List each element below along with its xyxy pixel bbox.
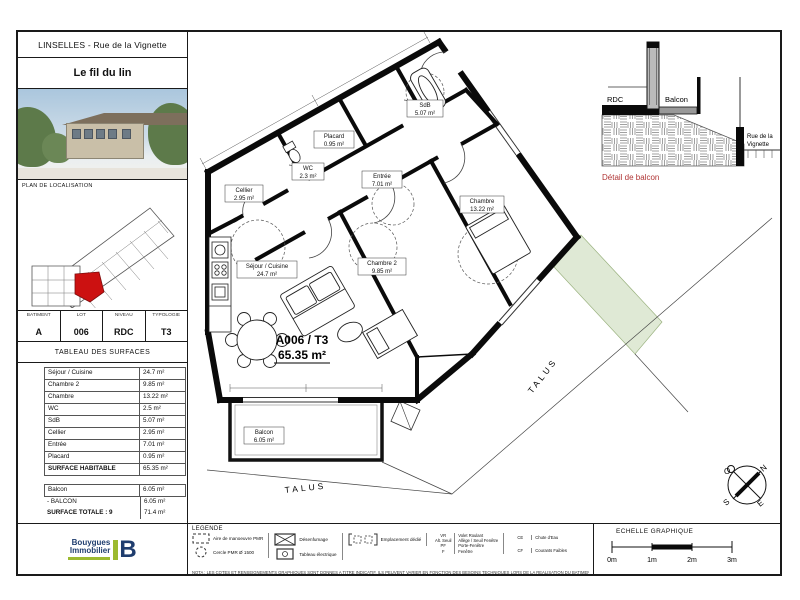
room-label-chambre: Chambre13.22 m² bbox=[460, 196, 504, 213]
scale-tick: 0m bbox=[607, 557, 617, 564]
legend-item: Tableau électrique bbox=[274, 548, 336, 560]
compass-s: S bbox=[722, 497, 732, 507]
legend-column: Désenfumage Tableau électrique bbox=[274, 533, 342, 560]
unit-info-cell: TYPOLOGIE T3 bbox=[146, 311, 188, 341]
pmr-area-icon bbox=[192, 533, 210, 544]
scale-tick: 3m bbox=[727, 557, 737, 564]
program-name: Le fil du lin bbox=[18, 58, 187, 89]
legend-item-label: Aire de manoeuvre PMR bbox=[213, 536, 263, 541]
legend-item: Cercle PMR Ø 1500 bbox=[192, 546, 263, 558]
room-label: Cellier bbox=[45, 428, 140, 439]
svg-text:2.3 m²: 2.3 m² bbox=[299, 174, 316, 180]
table-row: SdB5.07 m² bbox=[44, 416, 186, 428]
room-area: 9.85 m² bbox=[140, 380, 185, 391]
table-row: Séjour / Cuisine24.7 m² bbox=[44, 367, 186, 380]
table-row: Entrée7.01 m² bbox=[44, 440, 186, 452]
balcony-rail bbox=[697, 77, 701, 114]
logo-tagline-mark bbox=[68, 557, 110, 560]
room-label-balcon: Balcon6.05 m² bbox=[244, 427, 284, 444]
appliance-slot-icon bbox=[348, 533, 378, 546]
svg-text:5.07 m²: 5.07 m² bbox=[415, 111, 435, 117]
room-label: SURFACE HABITABLE bbox=[45, 464, 140, 475]
svg-text:7.01 m²: 7.01 m² bbox=[372, 182, 392, 188]
room-label: SURFACE TOTALE : 9 bbox=[44, 508, 141, 519]
room-label: Séjour / Cuisine bbox=[45, 368, 140, 379]
compass-e: E bbox=[756, 498, 766, 508]
balcony-sub-row: - BALCON6.05 m² bbox=[44, 497, 186, 508]
plan-sheet-page: LINSELLES - Rue de la Vignette Le fil du… bbox=[0, 0, 800, 600]
room-area: 6.05 m² bbox=[141, 497, 186, 508]
room-area: 5.07 m² bbox=[140, 416, 185, 427]
room-label-cellier: Cellier2.95 m² bbox=[225, 185, 263, 202]
street-wall bbox=[736, 127, 744, 166]
building-photo bbox=[18, 89, 187, 180]
table-row: Cellier2.95 m² bbox=[44, 428, 186, 440]
rdc-label: RDC bbox=[607, 95, 624, 104]
logo-box: Bouygues Immobilier B bbox=[18, 523, 188, 576]
balcony-slab bbox=[659, 107, 697, 114]
room-label-wc: WC2.3 m² bbox=[292, 163, 324, 180]
street-label: Rue de la bbox=[747, 134, 773, 140]
nota-text: NOTA : LES COTES ET RENSEIGNEMENTS GRAPH… bbox=[192, 570, 589, 575]
room-labels: Cellier2.95 m² WC2.3 m² Placard0.95 m² S… bbox=[225, 100, 504, 444]
scale-title: ECHELLE GRAPHIQUE bbox=[616, 528, 772, 535]
svg-text:Chambre 2: Chambre 2 bbox=[367, 261, 397, 267]
drawing-sheet: LINSELLES - Rue de la Vignette Le fil du… bbox=[16, 30, 782, 576]
svg-text:Placard: Placard bbox=[324, 134, 344, 140]
room-area: 24.7 m² bbox=[140, 368, 185, 379]
unit-info-table: BATIMENT A LOT 006 NIVEAU RDC TYPOLOGIE … bbox=[18, 311, 187, 342]
room-area: 7.01 m² bbox=[140, 440, 185, 451]
room-label: Balcon bbox=[45, 485, 140, 496]
balcon-label: Balcon bbox=[665, 95, 688, 104]
balcony-detail-drawing: RDC Balcon Rue de la Vignette Détail de … bbox=[602, 42, 780, 182]
balcony-row: Balcon6.05 m² bbox=[44, 484, 186, 497]
legend-title: LEGENDE bbox=[192, 526, 589, 532]
svg-text:9.85 m²: 9.85 m² bbox=[372, 269, 392, 275]
svg-text:13.22 m²: 13.22 m² bbox=[470, 207, 494, 213]
abbr-key: F bbox=[432, 549, 455, 554]
building-window bbox=[108, 129, 117, 139]
building-window bbox=[84, 129, 93, 139]
abbr-value: Fenêtre bbox=[458, 549, 472, 554]
legend-item-label: Emplacement dédié bbox=[381, 537, 422, 542]
compass-rose: N S E O bbox=[722, 463, 769, 509]
svg-text:A006 / T3: A006 / T3 bbox=[276, 333, 329, 347]
svg-text:Vignette: Vignette bbox=[747, 142, 770, 148]
table-row: WC2.5 m² bbox=[44, 404, 186, 416]
svg-text:Cellier: Cellier bbox=[235, 188, 252, 194]
legend-item-label: Cercle PMR Ø 1500 bbox=[213, 550, 254, 555]
toilet bbox=[283, 141, 303, 165]
svg-text:0.95 m²: 0.95 m² bbox=[324, 142, 344, 148]
pmr-circle-icon bbox=[192, 546, 210, 558]
abbr-key: CF bbox=[509, 548, 532, 553]
abbr-key: CE bbox=[509, 535, 532, 540]
svg-text:Entrée: Entrée bbox=[373, 174, 391, 180]
talus-label: TALUS bbox=[284, 481, 327, 495]
building-window bbox=[96, 129, 105, 139]
kitchen-counter bbox=[209, 237, 231, 332]
floor-plan-svg: TALUS TALUS bbox=[188, 32, 780, 523]
svg-text:Séjour / Cuisine: Séjour / Cuisine bbox=[246, 264, 289, 270]
detail-caption: Détail de balcon bbox=[602, 173, 659, 182]
compass-o: O bbox=[724, 467, 730, 476]
svg-text:2.95 m²: 2.95 m² bbox=[234, 196, 254, 202]
room-label: SdB bbox=[45, 416, 140, 427]
room-label: Entrée bbox=[45, 440, 140, 451]
green-area bbox=[554, 235, 662, 354]
legend-abbreviations: VRVolet Roulant Alt. SeuilAllège / Seuil… bbox=[432, 533, 504, 554]
table-row: Chambre 29.85 m² bbox=[44, 380, 186, 392]
room-label-chambre2: Chambre 29.85 m² bbox=[358, 258, 406, 275]
unit-info-header: LOT bbox=[61, 311, 103, 322]
room-label: Chambre 2 bbox=[45, 380, 140, 391]
room-area: 13.22 m² bbox=[140, 392, 185, 403]
abbr-value: Chute d'Eau bbox=[535, 535, 558, 540]
legend-box: LEGENDE Aire de manoeuvre PMR Cercle PMR… bbox=[188, 524, 594, 576]
table-row: Placard0.95 m² bbox=[44, 452, 186, 464]
svg-text:Chambre: Chambre bbox=[470, 199, 495, 205]
bouygues-immobilier-logo: Bouygues Immobilier B bbox=[68, 539, 136, 560]
floor-plan-area: TALUS TALUS bbox=[188, 32, 780, 523]
logo-b-glyph: B bbox=[119, 540, 136, 560]
room-area: 6.05 m² bbox=[140, 485, 185, 496]
room-label-entree: Entrée7.01 m² bbox=[362, 171, 402, 188]
room-label: - BALCON bbox=[44, 497, 141, 508]
svg-text:WC: WC bbox=[303, 166, 314, 172]
room-area: 65.35 m² bbox=[140, 464, 185, 475]
building-window bbox=[72, 129, 81, 139]
unit-code-label: A006 / T3 65.35 m² bbox=[274, 333, 330, 363]
legend-abbreviations: CEChute d'Eau CFCourants Faibles bbox=[509, 533, 572, 553]
svg-text:SdB: SdB bbox=[419, 103, 430, 109]
wall-section bbox=[647, 42, 659, 109]
surfaces-table-title: TABLEAU DES SURFACES bbox=[18, 342, 187, 363]
legend-item: Emplacement dédié bbox=[348, 533, 422, 546]
bed bbox=[465, 205, 531, 275]
bed bbox=[363, 310, 418, 359]
location-plan: PLAN DE LOCALISATION bbox=[18, 180, 187, 311]
scale-bar: 0m 1m 2m 3m bbox=[602, 535, 752, 565]
title-block-column: LINSELLES - Rue de la Vignette Le fil du… bbox=[18, 32, 188, 523]
building-window bbox=[122, 129, 131, 139]
room-area: 0.95 m² bbox=[140, 452, 185, 463]
habitable-surface-row: SURFACE HABITABLE65.35 m² bbox=[44, 464, 186, 476]
legend-item-label: Tableau électrique bbox=[299, 552, 336, 557]
scale-tick: 1m bbox=[647, 557, 657, 564]
talus-label: TALUS bbox=[526, 356, 560, 395]
legend-item-label: Désenfumage bbox=[299, 537, 328, 542]
unit-info-value: RDC bbox=[103, 322, 145, 341]
unit-info-cell: LOT 006 bbox=[61, 311, 104, 341]
window-x-icon bbox=[274, 533, 296, 546]
unit-info-value: 006 bbox=[61, 322, 103, 341]
svg-text:65.35 m²: 65.35 m² bbox=[278, 348, 326, 362]
room-label-sejour: Séjour / Cuisine24.7 m² bbox=[237, 261, 297, 278]
unit-info-header: TYPOLOGIE bbox=[146, 311, 188, 322]
location-plan-title: PLAN DE LOCALISATION bbox=[22, 183, 93, 189]
logo-green-bar bbox=[113, 540, 118, 560]
legend-item: Aire de manoeuvre PMR bbox=[192, 533, 263, 544]
room-label-sdb: SdB5.07 m² bbox=[407, 100, 443, 117]
svg-text:Balcon: Balcon bbox=[255, 430, 273, 436]
graphic-scale-box: ECHELLE GRAPHIQUE 0m 1m 2m 3m bbox=[594, 524, 780, 576]
coffee-table bbox=[334, 318, 365, 345]
svg-text:24.7 m²: 24.7 m² bbox=[257, 272, 277, 278]
unit-info-value: T3 bbox=[146, 322, 188, 341]
table-row: Chambre13.22 m² bbox=[44, 392, 186, 404]
unit-info-header: NIVEAU bbox=[103, 311, 145, 322]
room-area: 71.4 m² bbox=[141, 508, 186, 519]
unit-info-cell: NIVEAU RDC bbox=[103, 311, 146, 341]
room-label-placard: Placard0.95 m² bbox=[314, 131, 354, 148]
project-location: LINSELLES - Rue de la Vignette bbox=[18, 32, 187, 58]
logo-text-line: Immobilier bbox=[68, 547, 110, 555]
abbr-value: Courants Faibles bbox=[535, 548, 567, 553]
legend-item: Désenfumage bbox=[274, 533, 336, 546]
unit-info-header: BATIMENT bbox=[18, 311, 60, 322]
legend-column: Aire de manoeuvre PMR Cercle PMR Ø 1500 bbox=[192, 533, 269, 558]
room-area: 2.5 m² bbox=[140, 404, 185, 415]
unit-info-cell: BATIMENT A bbox=[18, 311, 61, 341]
site-plan-drawing bbox=[18, 180, 186, 308]
scale-tick: 2m bbox=[687, 557, 697, 564]
unit-info-value: A bbox=[18, 322, 60, 341]
room-label: Placard bbox=[45, 452, 140, 463]
electrical-panel-icon bbox=[274, 548, 296, 560]
total-surface-row: SURFACE TOTALE : 971.4 m² bbox=[44, 508, 186, 519]
room-label: Chambre bbox=[45, 392, 140, 403]
svg-text:6.05 m²: 6.05 m² bbox=[254, 438, 274, 444]
legend-column: Emplacement dédié bbox=[348, 533, 428, 546]
room-label: WC bbox=[45, 404, 140, 415]
room-area: 2.95 m² bbox=[140, 428, 185, 439]
surfaces-table: Séjour / Cuisine24.7 m² Chambre 29.85 m²… bbox=[44, 367, 186, 519]
pavement bbox=[18, 168, 187, 179]
